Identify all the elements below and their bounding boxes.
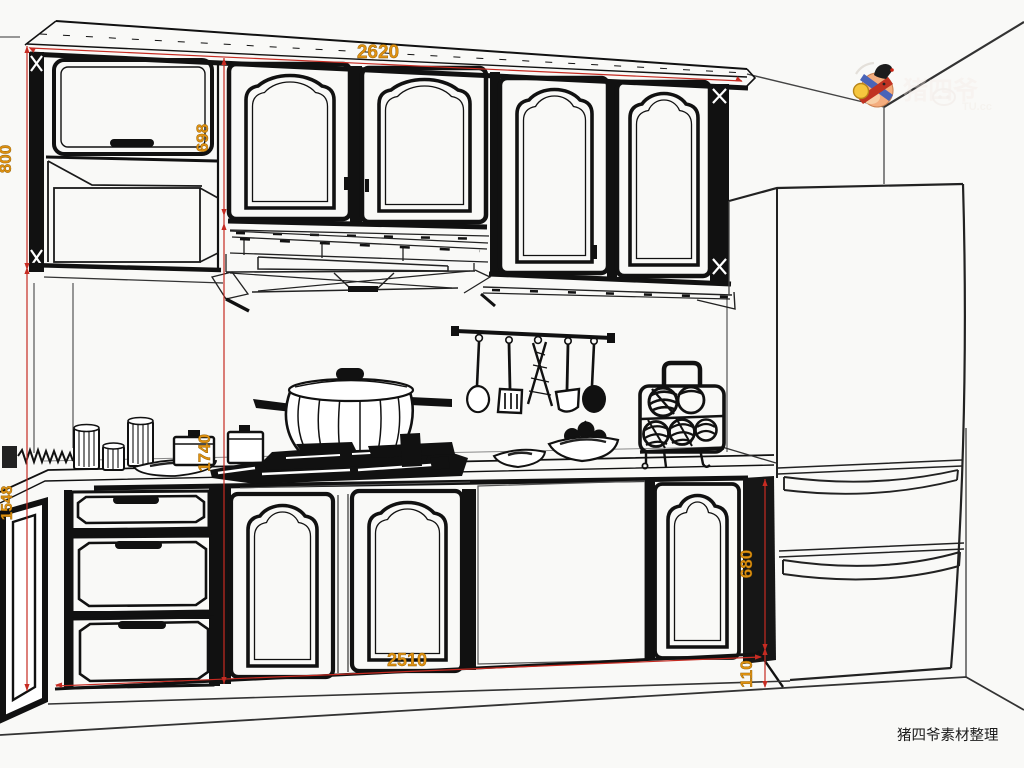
svg-text:TU.cc: TU.cc [962, 101, 992, 113]
svg-text:2620: 2620 [357, 42, 399, 63]
svg-text:680: 680 [737, 550, 756, 578]
svg-text:698: 698 [193, 124, 212, 152]
svg-text:1740: 1740 [195, 434, 214, 472]
svg-text:110: 110 [737, 660, 756, 687]
svg-text:2510: 2510 [387, 650, 427, 670]
svg-text:800: 800 [0, 145, 15, 173]
svg-text:1548: 1548 [0, 485, 16, 520]
svg-text:猪四爷素材整理: 猪四爷素材整理 [897, 727, 999, 744]
